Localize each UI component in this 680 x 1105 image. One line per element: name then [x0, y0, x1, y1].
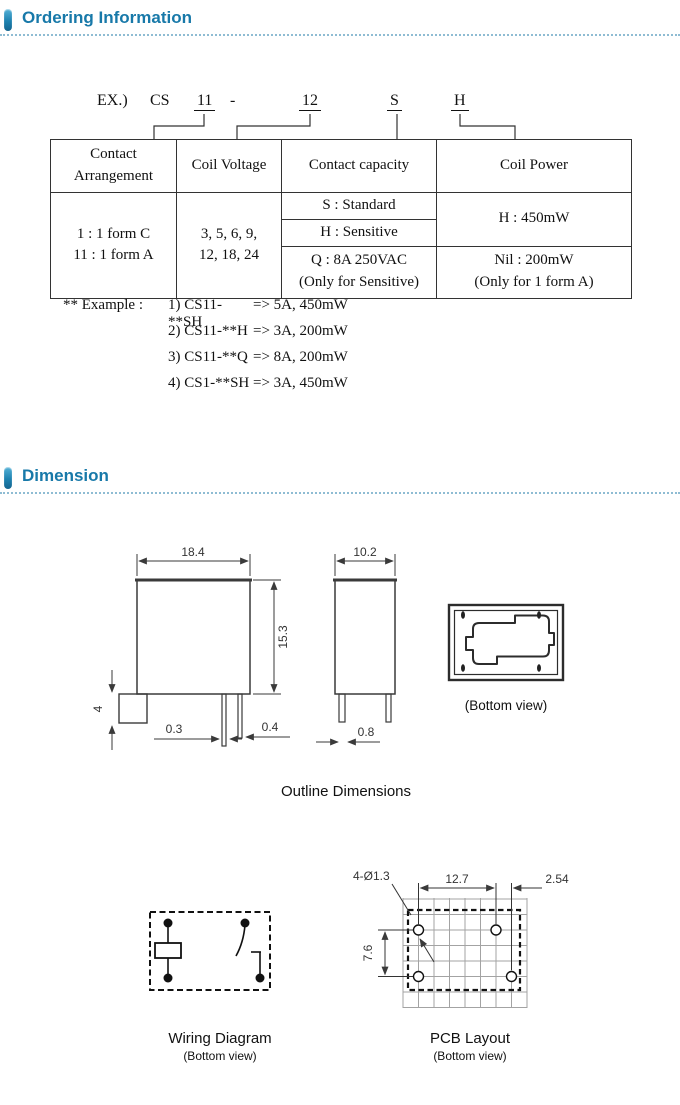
dim-pcb-pitch: 2.54 — [545, 872, 569, 886]
code-prefix: EX.) — [97, 92, 128, 110]
example-result: => 5A, 450mW — [253, 297, 348, 314]
cell-capacity-sensitive: H : Sensitive — [282, 219, 437, 246]
header-contact-arrangement: Contact Arrangement — [51, 140, 177, 193]
example-row: ** Example : 1) CS11-**SH => 5A, 450mW — [63, 297, 348, 323]
coil-symbol — [155, 943, 181, 958]
code-capacity: S — [387, 92, 402, 111]
ordering-examples: ** Example : 1) CS11-**SH => 5A, 450mW 2… — [63, 297, 348, 401]
table-header-row: Contact Arrangement Coil Voltage Contact… — [51, 140, 632, 193]
code-voltage: 12 — [299, 92, 321, 111]
cell-power-h: H : 450mW — [437, 193, 632, 247]
example-code: 4) CS1-**SH — [168, 375, 253, 392]
pcb-caption: PCB Layout (Bottom view) — [345, 1029, 595, 1064]
example-row: 3) CS11-**Q => 8A, 200mW — [168, 349, 348, 375]
datasheet-page: Ordering Information EX.) CS 11 - 12 S H… — [0, 0, 680, 1105]
example-code: 2) CS11-**H — [168, 323, 253, 340]
code-series: CS — [150, 92, 170, 110]
wiring-caption-title: Wiring Diagram — [120, 1029, 320, 1048]
example-code: 3) CS11-**Q — [168, 349, 253, 366]
dim-front-width: 18.4 — [181, 545, 205, 559]
capacity-q-line1: Q : 8A 250VAC — [286, 250, 432, 272]
pcb-layout-drawing: 4-Ø1.3 12.7 2.54 7.6 — [345, 858, 595, 1023]
arrangement-line2: 11 : 1 form A — [55, 245, 172, 267]
cell-capacity-q: Q : 8A 250VAC (Only for Sensitive) — [282, 246, 437, 298]
dimension-section-header: Dimension — [0, 466, 680, 500]
bottom-view-drawing — [449, 605, 563, 680]
dim-pin-w2: 0.4 — [262, 720, 279, 734]
section-divider — [0, 34, 680, 36]
cell-capacity-standard: S : Standard — [282, 193, 437, 220]
capacity-q-note: (Only for Sensitive) — [286, 272, 432, 294]
wiring-caption-sub: (Bottom view) — [120, 1048, 320, 1064]
dim-side-pin-w: 0.8 — [358, 725, 375, 739]
code-power: H — [451, 92, 469, 111]
dim-front-height: 15.3 — [276, 625, 290, 649]
example-result: => 8A, 200mW — [253, 349, 348, 366]
cell-power-nil: Nil : 200mW (Only for 1 form A) — [437, 246, 632, 298]
outline-dimensions-drawing: 18.4 15.3 4 0.3 0.4 10.2 0.8 — [90, 530, 630, 810]
ordering-table: Contact Arrangement Coil Voltage Contact… — [50, 139, 632, 299]
header-coil-voltage: Coil Voltage — [177, 140, 282, 193]
pcb-caption-title: PCB Layout — [345, 1029, 595, 1048]
section-bar-icon — [4, 9, 12, 31]
example-result: => 3A, 200mW — [253, 323, 348, 340]
contact-blade — [236, 925, 245, 956]
section-bar-icon — [4, 467, 12, 489]
dim-hole-label: 4-Ø1.3 — [353, 869, 390, 883]
ordering-section-title: Ordering Information — [22, 8, 192, 28]
contact-pin-bottom — [256, 974, 265, 983]
dim-pin-length: 4 — [91, 705, 105, 712]
pcb-caption-sub: (Bottom view) — [345, 1048, 595, 1064]
dim-side-width: 10.2 — [353, 545, 377, 559]
example-result: => 3A, 450mW — [253, 375, 348, 392]
cell-coil-voltage: 3, 5, 6, 9, 12, 18, 24 — [177, 193, 282, 299]
wiring-diagram-drawing — [120, 895, 320, 1015]
dim-pcb-y: 7.6 — [361, 944, 375, 961]
cell-contact-arrangement: 1 : 1 form C 11 : 1 form A — [51, 193, 177, 299]
code-dash: - — [230, 92, 235, 110]
pcb-outline — [408, 910, 520, 990]
ordering-section-header: Ordering Information — [0, 8, 680, 42]
power-nil-note: (Only for 1 form A) — [441, 272, 627, 294]
arrangement-line1: 1 : 1 form C — [55, 224, 172, 246]
bottom-view-label: (Bottom view) — [465, 698, 548, 713]
pcb-grid — [403, 898, 527, 1008]
example-row: 2) CS11-**H => 3A, 200mW — [168, 323, 348, 349]
voltage-line1: 3, 5, 6, 9, — [181, 224, 277, 246]
side-view-drawing — [316, 554, 397, 742]
table-row: 1 : 1 form C 11 : 1 form A 3, 5, 6, 9, 1… — [51, 193, 632, 220]
coil-pin-bottom — [164, 974, 173, 983]
example-row: 4) CS1-**SH => 3A, 450mW — [168, 375, 348, 401]
outline-caption: Outline Dimensions — [281, 783, 411, 800]
voltage-line2: 12, 18, 24 — [181, 245, 277, 267]
example-prefix: ** Example : — [63, 297, 168, 314]
code-arrangement: 11 — [194, 92, 215, 111]
dim-pin-w1: 0.3 — [166, 722, 183, 736]
header-contact-capacity: Contact capacity — [282, 140, 437, 193]
section-divider — [0, 492, 680, 494]
power-nil-line1: Nil : 200mW — [441, 250, 627, 272]
wiring-caption: Wiring Diagram (Bottom view) — [120, 1029, 320, 1064]
header-coil-power: Coil Power — [437, 140, 632, 193]
dim-pcb-x: 12.7 — [445, 872, 469, 886]
code-connector-lines — [90, 112, 530, 141]
dimension-section-title: Dimension — [22, 466, 109, 486]
